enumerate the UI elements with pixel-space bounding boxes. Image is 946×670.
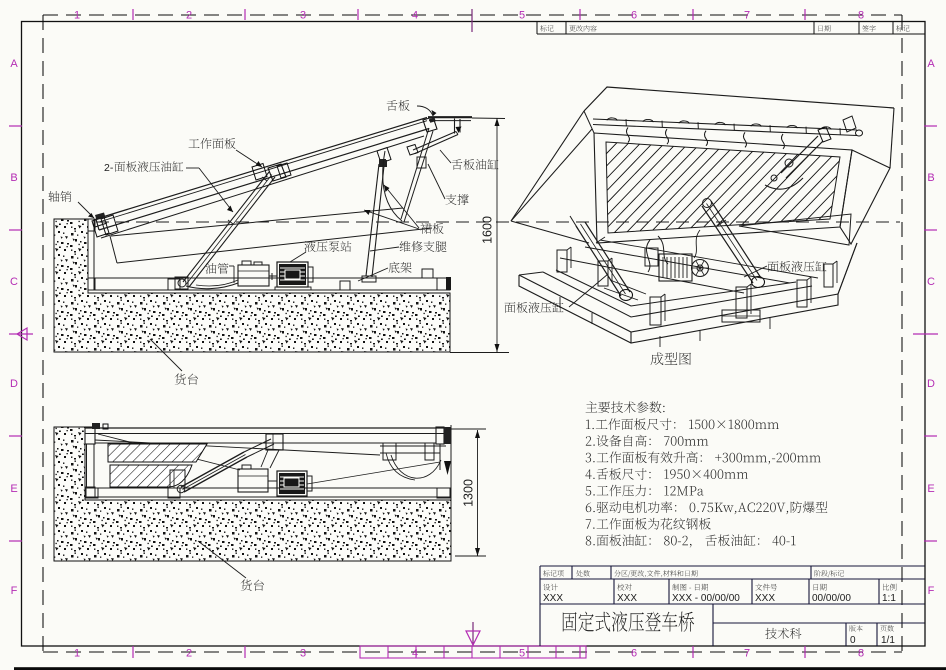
svg-text:1600: 1600 [481,216,495,244]
svg-text:00/00/00: 00/00/00 [812,593,851,604]
svg-text:1300: 1300 [462,479,476,507]
svg-text:F: F [928,585,935,597]
svg-text:6: 6 [631,10,637,22]
svg-text:B: B [10,172,17,184]
svg-text:3: 3 [300,648,306,660]
svg-text:XXX - 00/00/00: XXX - 00/00/00 [672,593,740,604]
svg-text:XXX: XXX [543,593,563,604]
svg-text:1: 1 [74,648,80,660]
svg-text:5: 5 [519,10,525,22]
svg-text:B: B [927,172,934,184]
svg-text:1/1: 1/1 [881,635,895,646]
svg-text:A: A [10,58,18,70]
svg-text:0: 0 [850,635,856,646]
svg-text:D: D [10,378,18,390]
svg-text:E: E [10,483,17,495]
svg-text:6: 6 [631,648,637,660]
svg-text:XXX: XXX [617,593,637,604]
svg-text:7: 7 [744,10,750,22]
svg-text:A: A [927,58,935,70]
svg-text:D: D [927,378,935,390]
svg-text:F: F [11,585,18,597]
svg-text:C: C [10,276,18,288]
svg-text:2: 2 [186,10,192,22]
svg-text:8: 8 [858,648,864,660]
svg-text:2: 2 [186,648,192,660]
svg-text:8: 8 [858,10,864,22]
svg-text:7: 7 [744,648,750,660]
svg-text:1: 1 [74,10,80,22]
svg-text:C: C [927,276,935,288]
svg-text:4: 4 [412,10,418,22]
svg-text:E: E [927,483,934,495]
svg-text:1:1: 1:1 [882,593,896,604]
svg-text:3: 3 [300,10,306,22]
svg-text:XXX: XXX [755,593,775,604]
svg-text:2-: 2- [104,162,114,174]
